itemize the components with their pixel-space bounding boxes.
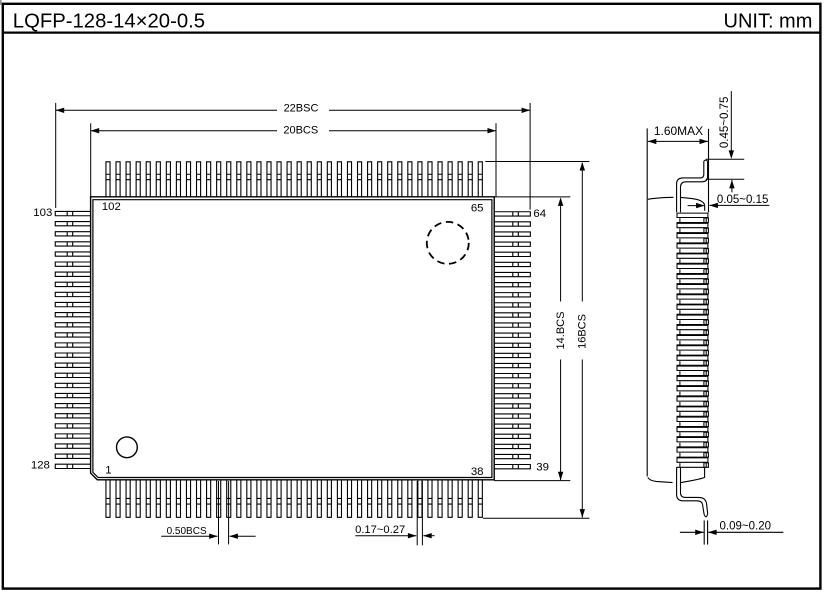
svg-text:102: 102: [102, 201, 121, 213]
svg-text:0.45~0.75: 0.45~0.75: [719, 97, 731, 148]
svg-text:65: 65: [471, 203, 484, 215]
svg-text:1: 1: [105, 465, 111, 477]
svg-text:LQFP-128-14×20-0.5: LQFP-128-14×20-0.5: [13, 11, 205, 33]
svg-text:1.60MAX: 1.60MAX: [654, 124, 703, 138]
svg-text:38: 38: [471, 466, 484, 478]
svg-text:16BCS: 16BCS: [577, 314, 589, 349]
svg-text:0.17~0.27: 0.17~0.27: [355, 524, 405, 536]
svg-text:128: 128: [31, 459, 50, 471]
svg-text:39: 39: [536, 461, 549, 473]
svg-text:UNIT: mm: UNIT: mm: [724, 11, 813, 33]
svg-text:64: 64: [533, 208, 546, 220]
svg-text:0.05~0.15: 0.05~0.15: [717, 194, 768, 206]
svg-text:20BCS: 20BCS: [283, 125, 318, 137]
svg-text:22BSC: 22BSC: [284, 103, 319, 115]
svg-text:103: 103: [33, 207, 52, 219]
svg-text:14.BCS: 14.BCS: [555, 312, 567, 350]
svg-text:0.09~0.20: 0.09~0.20: [720, 521, 771, 533]
svg-text:0.50BCS: 0.50BCS: [167, 526, 207, 537]
